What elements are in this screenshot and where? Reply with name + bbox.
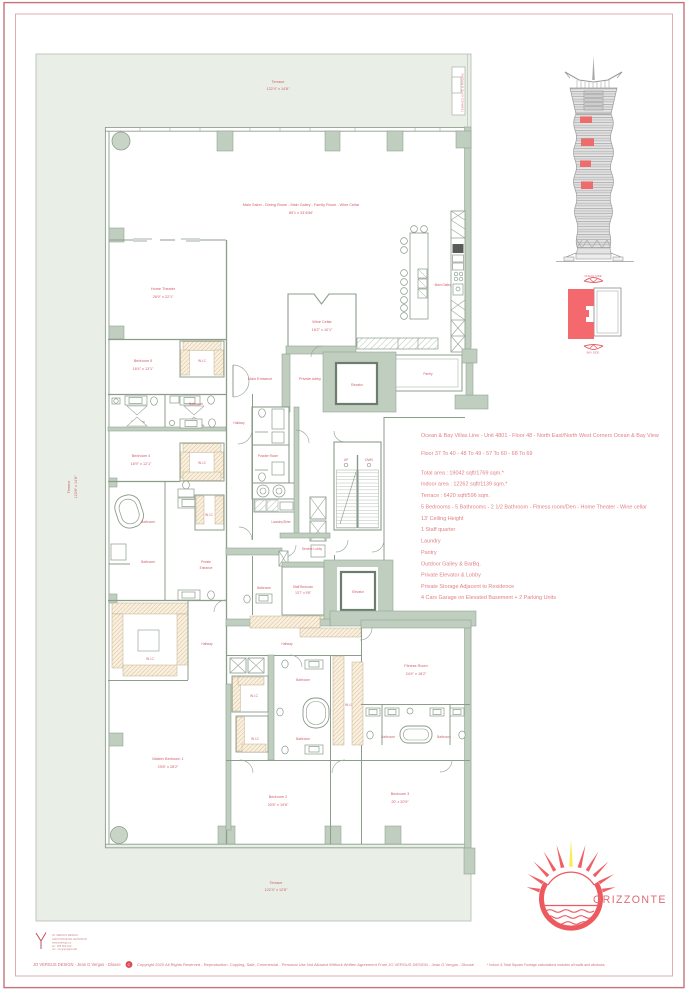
svg-text:Outdoor Galley & BarBq.: Outdoor Galley & BarBq. xyxy=(421,561,481,567)
svg-text:Hallway: Hallway xyxy=(233,421,245,425)
svg-text:13'7" x 9'8": 13'7" x 9'8" xyxy=(295,591,311,595)
svg-text:Master Bedroom 1: Master Bedroom 1 xyxy=(152,757,183,761)
svg-text:tel : 305 600 100: tel : 305 600 100 xyxy=(52,944,72,948)
svg-text:DWN: DWN xyxy=(365,458,373,462)
svg-text:Bathroom: Bathroom xyxy=(141,560,155,564)
svg-text:JO VERGUS DESIGN: JO VERGUS DESIGN xyxy=(52,933,78,937)
svg-text:W.I.C: W.I.C xyxy=(250,694,258,698)
svg-text:W.I.C: W.I.C xyxy=(146,657,154,661)
svg-text:Total area : 19042 sqft/1769 s: Total area : 19042 sqft/1769 sqm.* xyxy=(421,470,505,476)
svg-text:13' Ceiling Height: 13' Ceiling Height xyxy=(421,516,464,522)
svg-text:W.I.C: W.I.C xyxy=(205,513,213,517)
svg-text:Bathroom: Bathroom xyxy=(381,735,395,739)
svg-text:Hallway: Hallway xyxy=(201,642,213,646)
svg-text:JO VERGUS DESIGN - Jean G Verg: JO VERGUS DESIGN - Jean G Vergus - Dlous… xyxy=(33,962,121,967)
svg-text:Entrance: Entrance xyxy=(200,566,213,570)
svg-text:Wine Cellar: Wine Cellar xyxy=(312,320,332,324)
svg-text:Elevator: Elevator xyxy=(352,590,365,594)
svg-text:1 Staff quarter: 1 Staff quarter xyxy=(421,527,456,533)
svg-text:Terrace : 6420 sqft/596 sqm.: Terrace : 6420 sqft/596 sqm. xyxy=(421,493,490,499)
svg-text:2220 PONCE DE LEON BLVD: 2220 PONCE DE LEON BLVD xyxy=(52,937,87,941)
svg-text:Bathroom: Bathroom xyxy=(296,737,310,741)
svg-text:16'4" x 13'1": 16'4" x 13'1" xyxy=(133,367,154,371)
svg-text:cel : company@email: cel : company@email xyxy=(52,947,77,951)
svg-text:BAY SIDE: BAY SIDE xyxy=(587,351,600,355)
svg-text:www.jvdesign.co: www.jvdesign.co xyxy=(52,940,72,944)
svg-text:Indoor area : 12262 sqft/1139: Indoor area : 12262 sqft/1139 sqm.* xyxy=(421,482,508,488)
svg-text:Terrace: Terrace xyxy=(67,481,71,494)
svg-text:Laundry/Drier: Laundry/Drier xyxy=(271,520,291,524)
svg-text:122'4" x 14'8": 122'4" x 14'8" xyxy=(267,87,291,91)
svg-text:W.I.C: W.I.C xyxy=(198,461,206,465)
svg-text:Home Theater: Home Theater xyxy=(151,287,176,291)
svg-text:Laundry: Laundry xyxy=(421,539,441,545)
svg-text:Terrace: Terrace xyxy=(272,80,285,84)
svg-text:29'8" x 28'2": 29'8" x 28'2" xyxy=(158,765,179,769)
svg-text:Service Lobby: Service Lobby xyxy=(302,547,323,551)
svg-text:Elevator: Elevator xyxy=(351,383,364,387)
svg-text:5 Bedrooms - 5 Bathrooms - 2: 5 Bedrooms - 5 Bathrooms - 2 1/2 Bathroo… xyxy=(421,504,647,510)
svg-text:122'4" x 12'8": 122'4" x 12'8" xyxy=(265,888,289,892)
svg-text:ORIZZONTE: ORIZZONTE xyxy=(593,894,667,906)
svg-text:26'9" x 22'1": 26'9" x 22'1" xyxy=(153,295,174,299)
svg-text:Floor 37 To 40 - 48 To 49 - 57: Floor 37 To 40 - 48 To 49 - 57 To 60 - 6… xyxy=(421,451,532,457)
svg-text:Private Storage Adjacent to Re: Private Storage Adjacent to Residence xyxy=(421,584,514,590)
svg-text:Private lobby: Private lobby xyxy=(299,377,321,381)
svg-text:Bedroom 3: Bedroom 3 xyxy=(391,792,410,796)
svg-text:Terrace: Terrace xyxy=(270,881,283,885)
svg-text:Copyright 2020 All Rights Rese: Copyright 2020 All Rights Reserved - Rep… xyxy=(137,962,475,967)
svg-text:Fitness Room: Fitness Room xyxy=(404,664,427,668)
svg-text:Bathroom: Bathroom xyxy=(141,520,155,524)
svg-text:Hallway: Hallway xyxy=(281,642,293,646)
svg-text:Pantry: Pantry xyxy=(423,372,433,376)
svg-text:Powder Room: Powder Room xyxy=(258,454,279,458)
svg-text:Main Galley: Main Galley xyxy=(435,283,452,287)
svg-text:* Indoor & Total Square Footag: * Indoor & Total Square Footage calculat… xyxy=(487,963,605,967)
svg-text:4 Cars Garage on Elevated Base: 4 Cars Garage on Elevated Basement + 2 P… xyxy=(421,595,556,601)
svg-text:16'9" x 12'1": 16'9" x 12'1" xyxy=(131,462,152,466)
svg-text:123'8" x 14'8": 123'8" x 14'8" xyxy=(74,475,78,499)
svg-text:TERRACE GATE & RAILING: TERRACE GATE & RAILING xyxy=(461,73,465,112)
svg-text:Main Salon - Dining Room - Mai: Main Salon - Dining Room - Main Galley -… xyxy=(243,203,360,207)
svg-text:20'8" x 19'6": 20'8" x 19'6" xyxy=(268,803,289,807)
svg-text:Bedroom 5: Bedroom 5 xyxy=(134,359,153,363)
svg-text:Private Elevator & Lobby: Private Elevator & Lobby xyxy=(421,573,481,579)
svg-text:Private: Private xyxy=(201,560,211,564)
svg-text:Bathroom: Bathroom xyxy=(437,735,451,739)
svg-text:16'2" x 10'1": 16'2" x 10'1" xyxy=(312,328,333,332)
svg-text:Pantry: Pantry xyxy=(421,550,437,556)
svg-text:UP: UP xyxy=(344,458,348,462)
svg-text:20' x 20'9": 20' x 20'9" xyxy=(391,800,409,804)
svg-text:Bedroom 2: Bedroom 2 xyxy=(269,795,288,799)
svg-text:Bathroom: Bathroom xyxy=(189,402,203,406)
svg-text:Bathroom: Bathroom xyxy=(296,678,310,682)
svg-text:Main Entrance: Main Entrance xyxy=(248,377,272,381)
svg-text:Staff Bedroom: Staff Bedroom xyxy=(293,585,314,589)
svg-text:C: C xyxy=(128,962,131,967)
svg-text:Bathroom: Bathroom xyxy=(257,586,271,590)
svg-text:W.I.C: W.I.C xyxy=(198,359,206,363)
svg-text:24'4" x 18'2": 24'4" x 18'2" xyxy=(406,672,427,676)
svg-text:85'1 x 33'4/56': 85'1 x 33'4/56' xyxy=(289,211,313,215)
svg-text:Ocean & Bay Villas Line - Unit: Ocean & Bay Villas Line - Unit 4801 - Fl… xyxy=(421,433,659,439)
svg-text:Bedroom 4: Bedroom 4 xyxy=(132,454,151,458)
svg-text:W.I.C: W.I.C xyxy=(251,737,259,741)
